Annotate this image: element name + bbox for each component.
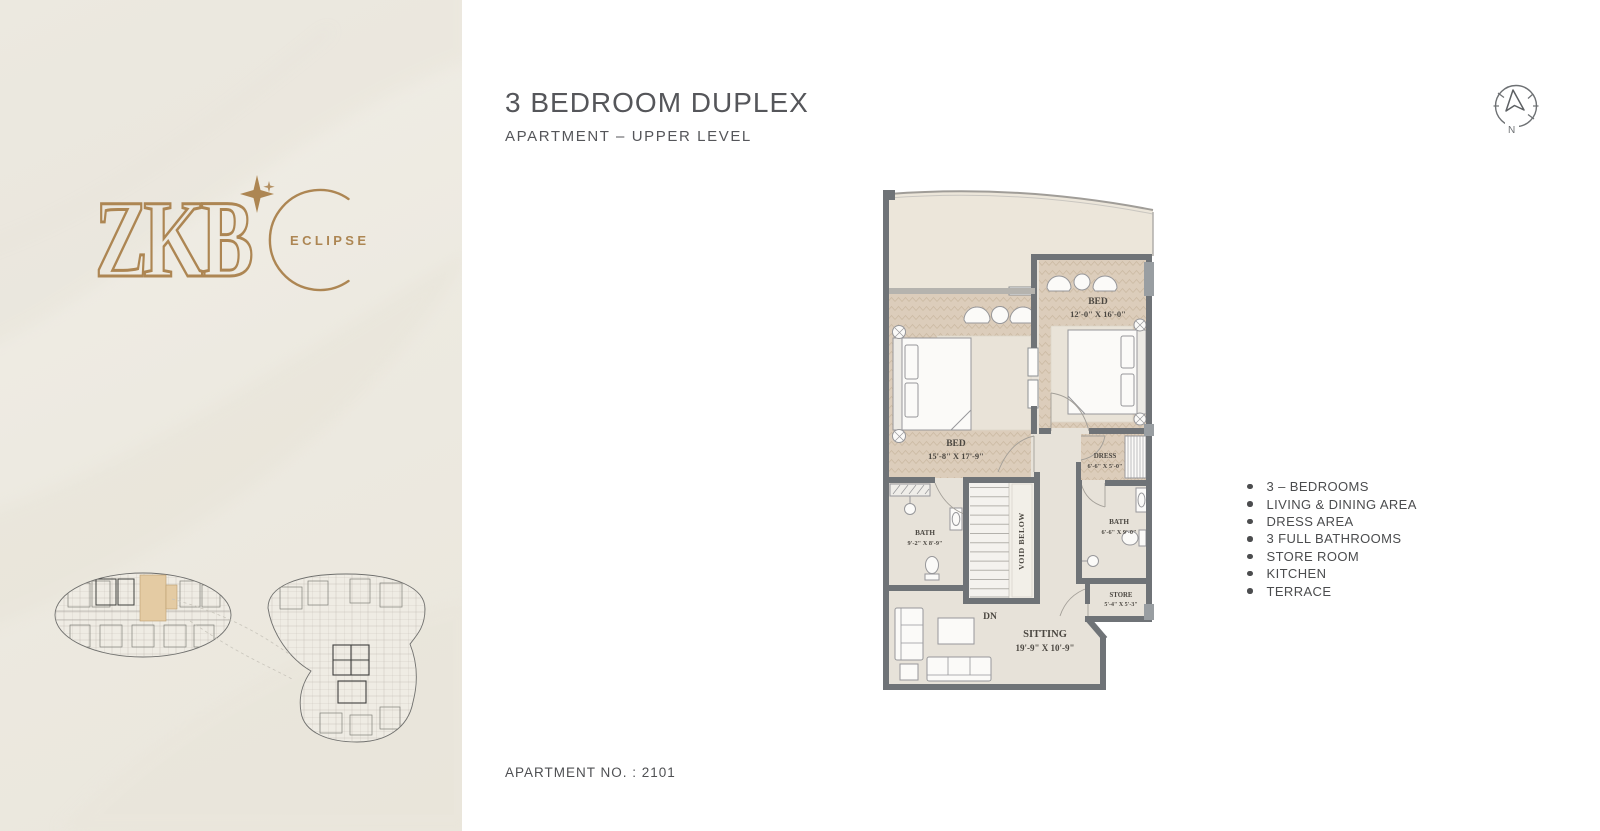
brand-panel: ZKB ECLIPSE bbox=[0, 0, 462, 831]
bed1-label: BED bbox=[946, 439, 966, 449]
zkb-eclipse-logo: ZKB ECLIPSE bbox=[85, 175, 385, 300]
feature-label: LIVING & DINING AREA bbox=[1267, 497, 1417, 512]
store-label: STORE bbox=[1110, 592, 1133, 599]
list-item: TERRACE bbox=[1247, 582, 1417, 599]
armchair bbox=[895, 608, 923, 660]
round-table bbox=[1074, 274, 1090, 290]
bullet-icon bbox=[1247, 588, 1253, 594]
bullet-icon bbox=[1247, 554, 1253, 560]
sitting-label: SITTING bbox=[1023, 629, 1067, 640]
dn-label: DN bbox=[983, 612, 997, 622]
sofa bbox=[927, 657, 991, 681]
title-block: 3 BEDROOM DUPLEX APARTMENT – UPPER LEVEL bbox=[505, 88, 809, 145]
store-dims: 5'-4" X 5'-3" bbox=[1104, 602, 1137, 608]
feature-label: STORE ROOM bbox=[1267, 549, 1360, 564]
bath2-label: BATH bbox=[1109, 518, 1129, 526]
sliding-door bbox=[1028, 348, 1038, 376]
sitting-dims: 19'-9" X 10'-9" bbox=[1016, 643, 1075, 653]
features-list: 3 – BEDROOMS LIVING & DINING AREA DRESS … bbox=[1247, 478, 1417, 600]
coffee-table bbox=[938, 618, 974, 644]
north-compass-icon: N bbox=[1487, 80, 1545, 138]
logo-brand-text: ZKB bbox=[95, 178, 252, 300]
dress-label: DRESS bbox=[1094, 452, 1117, 460]
list-item: STORE ROOM bbox=[1247, 548, 1417, 565]
sliding-door bbox=[1028, 380, 1038, 408]
key-plan-left bbox=[55, 573, 231, 657]
list-item: KITCHEN bbox=[1247, 565, 1417, 582]
feature-label: KITCHEN bbox=[1267, 566, 1327, 581]
bullet-icon bbox=[1247, 484, 1253, 490]
toilet bbox=[926, 557, 939, 574]
sink bbox=[1088, 556, 1099, 567]
bullet-icon bbox=[1247, 536, 1253, 542]
parapet bbox=[889, 288, 1035, 294]
feature-label: 3 FULL BATHROOMS bbox=[1267, 531, 1402, 546]
page-title: 3 BEDROOM DUPLEX bbox=[505, 88, 809, 119]
sink bbox=[905, 504, 916, 515]
bullet-icon bbox=[1247, 501, 1253, 507]
logo-wordmark: ECLIPSE bbox=[290, 233, 369, 248]
bath1-label: BATH bbox=[915, 529, 935, 537]
bath1-dims: 9'-2" X 8'-9" bbox=[908, 540, 943, 547]
list-item: DRESS AREA bbox=[1247, 513, 1417, 530]
void-below-label: VOID BELOW bbox=[1017, 512, 1026, 570]
floor-plan: BED 15'-8" X 17'-9" BED 12'-0" X 16'-0" … bbox=[853, 178, 1165, 693]
bed1-dims: 15'-8" X 17'-9" bbox=[928, 451, 984, 461]
list-item: LIVING & DINING AREA bbox=[1247, 495, 1417, 512]
bullet-icon bbox=[1247, 571, 1253, 577]
list-item: 3 – BEDROOMS bbox=[1247, 478, 1417, 495]
compass-north-label: N bbox=[1508, 125, 1515, 136]
compass-arrow bbox=[1506, 90, 1524, 111]
dress-dims: 6'-6" X 5'-0" bbox=[1088, 463, 1123, 470]
page-subtitle: APARTMENT – UPPER LEVEL bbox=[505, 128, 809, 145]
bed2-label: BED bbox=[1088, 297, 1108, 307]
feature-label: 3 – BEDROOMS bbox=[1267, 479, 1369, 494]
list-item: 3 FULL BATHROOMS bbox=[1247, 530, 1417, 547]
key-plan-right bbox=[268, 574, 426, 744]
bed2-dims: 12'-0" X 16'-0" bbox=[1070, 309, 1126, 319]
feature-label: DRESS AREA bbox=[1267, 514, 1354, 529]
bath2-dims: 6'-6" X 9'-0" bbox=[1102, 529, 1137, 536]
apartment-number: APARTMENT NO. : 2101 bbox=[505, 765, 676, 780]
bullet-icon bbox=[1247, 519, 1253, 525]
side-table bbox=[900, 664, 918, 680]
stairs-floor bbox=[969, 483, 1009, 600]
key-plans bbox=[40, 563, 438, 755]
feature-label: TERRACE bbox=[1267, 584, 1332, 599]
round-table bbox=[992, 307, 1009, 324]
